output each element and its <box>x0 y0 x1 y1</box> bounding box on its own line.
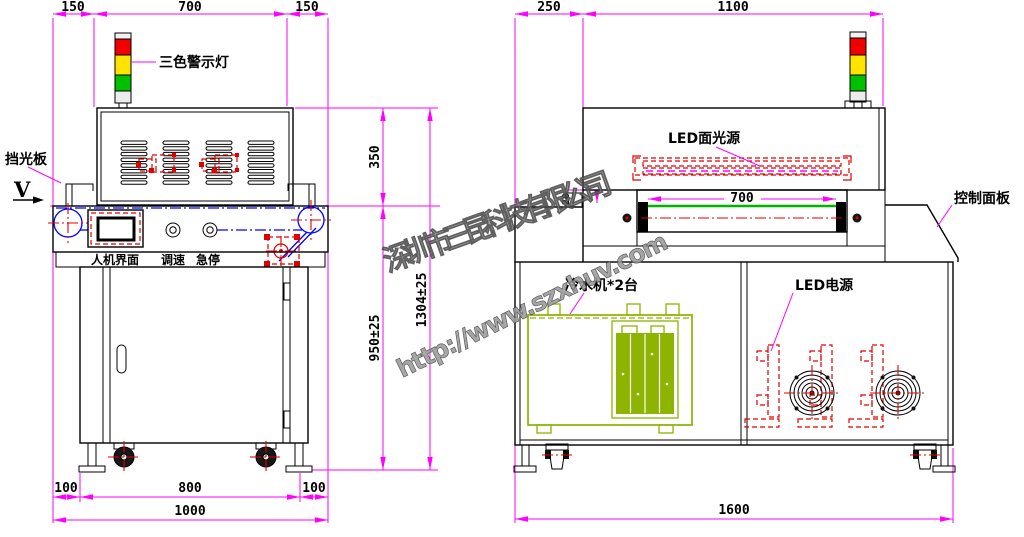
conveyor-opening: 700 <box>623 190 862 232</box>
warning-light-callout: 三色警示灯 <box>131 54 229 71</box>
speed-knob[interactable] <box>166 223 180 237</box>
dim-700-belt: 700 <box>730 191 754 206</box>
cooling-fan-right <box>870 365 926 421</box>
side-feet-casters <box>514 444 955 472</box>
dim-950: 950±25 <box>368 315 383 362</box>
machine-drawing-canvas: 150 700 150 350 950±25 1304±25 100 800 1… <box>0 0 1024 537</box>
control-panel-callout: 控制面板 <box>937 190 1011 227</box>
cad-drawing-page: 150 700 150 350 950±25 1304±25 100 800 1… <box>0 0 1024 537</box>
shield-bracket-left <box>66 184 93 206</box>
warning-light-tower-front <box>115 33 131 108</box>
dim-1000: 1000 <box>174 504 205 519</box>
hmi-screen[interactable] <box>88 210 143 247</box>
dim-150-left: 150 <box>61 0 85 15</box>
view-direction-arrow: V <box>13 177 44 204</box>
door-hinge-bottom <box>284 411 290 428</box>
warning-light-label: 三色警示灯 <box>159 54 229 71</box>
front-feet-casters <box>79 441 312 473</box>
led-source-callout: LED面光源 <box>668 130 760 166</box>
cabinet-front <box>80 267 308 443</box>
view-direction-label: V <box>13 177 31 202</box>
hood-front <box>97 108 293 205</box>
led-power-label: LED电源 <box>795 277 853 294</box>
tower-red-segment <box>115 39 131 55</box>
led-source-label: LED面光源 <box>668 130 740 147</box>
dim-150-right: 150 <box>295 0 319 15</box>
hmi-label: 人机界面 <box>91 252 139 267</box>
dim-1100: 1100 <box>717 0 748 15</box>
control-panel-label: 控制面板 <box>954 190 1011 207</box>
led-light-source <box>633 156 851 180</box>
tower-yellow-segment <box>115 55 131 75</box>
hood-side <box>583 108 885 190</box>
dim-100-right: 100 <box>302 481 326 496</box>
control-panel[interactable] <box>885 205 958 262</box>
warning-light-tower-side <box>845 32 871 108</box>
light-shield-label: 挡光板 <box>5 151 48 168</box>
dim-1600: 1600 <box>718 503 749 518</box>
door-handle[interactable] <box>117 345 126 373</box>
dim-700-top: 700 <box>178 0 202 15</box>
dim-1304: 1304±25 <box>415 273 430 328</box>
led-power-callout: LED电源 <box>771 277 853 351</box>
caster-front-left <box>108 441 140 473</box>
front-dimension-lines <box>50 14 440 523</box>
caster-side-right <box>910 444 940 469</box>
dim-100-left: 100 <box>54 481 78 496</box>
front-view: 150 700 150 350 950±25 1304±25 100 800 1… <box>5 0 440 523</box>
vent-louvers <box>121 141 274 184</box>
water-chiller <box>528 304 692 433</box>
cooling-fan-left <box>784 365 840 421</box>
dim-250: 250 <box>537 0 561 15</box>
caster-front-right <box>250 441 282 473</box>
estop-button[interactable] <box>203 223 217 237</box>
dim-350: 350 <box>368 145 383 169</box>
tower-green-segment <box>115 75 131 91</box>
drive-motor <box>264 234 300 267</box>
caster-side-left <box>542 444 572 469</box>
dim-800: 800 <box>178 481 202 496</box>
roller-left <box>48 203 88 243</box>
speed-label: 调速 <box>161 252 185 267</box>
door-hinge-top <box>284 283 290 300</box>
estop-label: 急停 <box>196 252 220 267</box>
